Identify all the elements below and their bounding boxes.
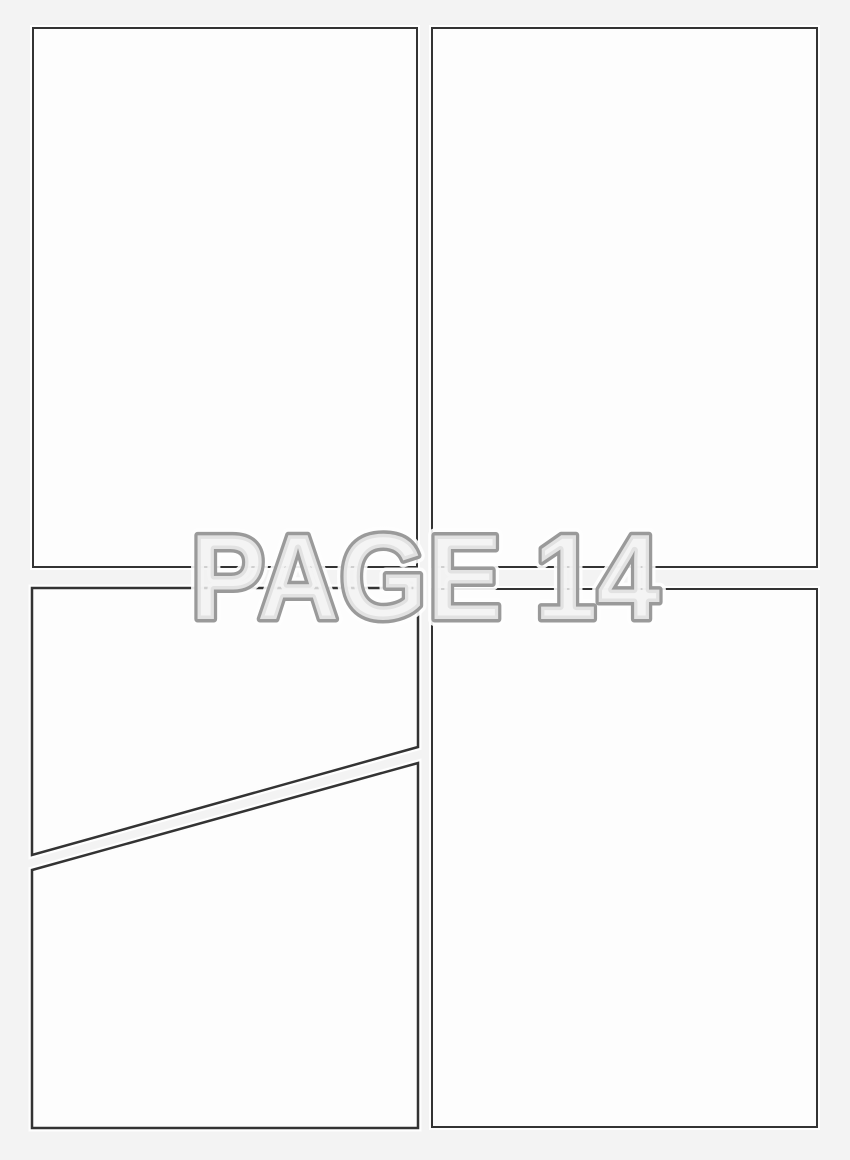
comic-panel-bottom-left-split: [28, 584, 422, 1132]
comic-panel-top-left: [32, 27, 418, 568]
comic-panel-top-right: [431, 27, 818, 568]
comic-page-template: PAGE 14 PAGE 14: [0, 0, 850, 1160]
comic-panel-bottom-right: [431, 588, 818, 1128]
